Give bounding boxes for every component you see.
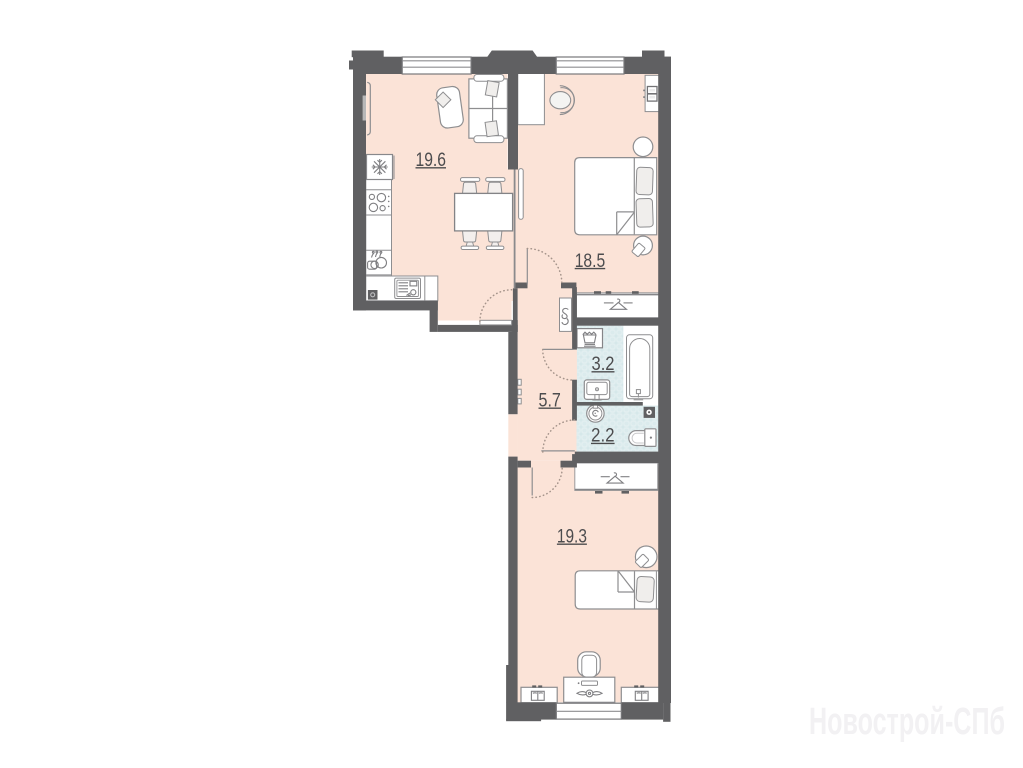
svg-text:Новострой-СПб: Новострой-СПб: [809, 701, 1005, 743]
